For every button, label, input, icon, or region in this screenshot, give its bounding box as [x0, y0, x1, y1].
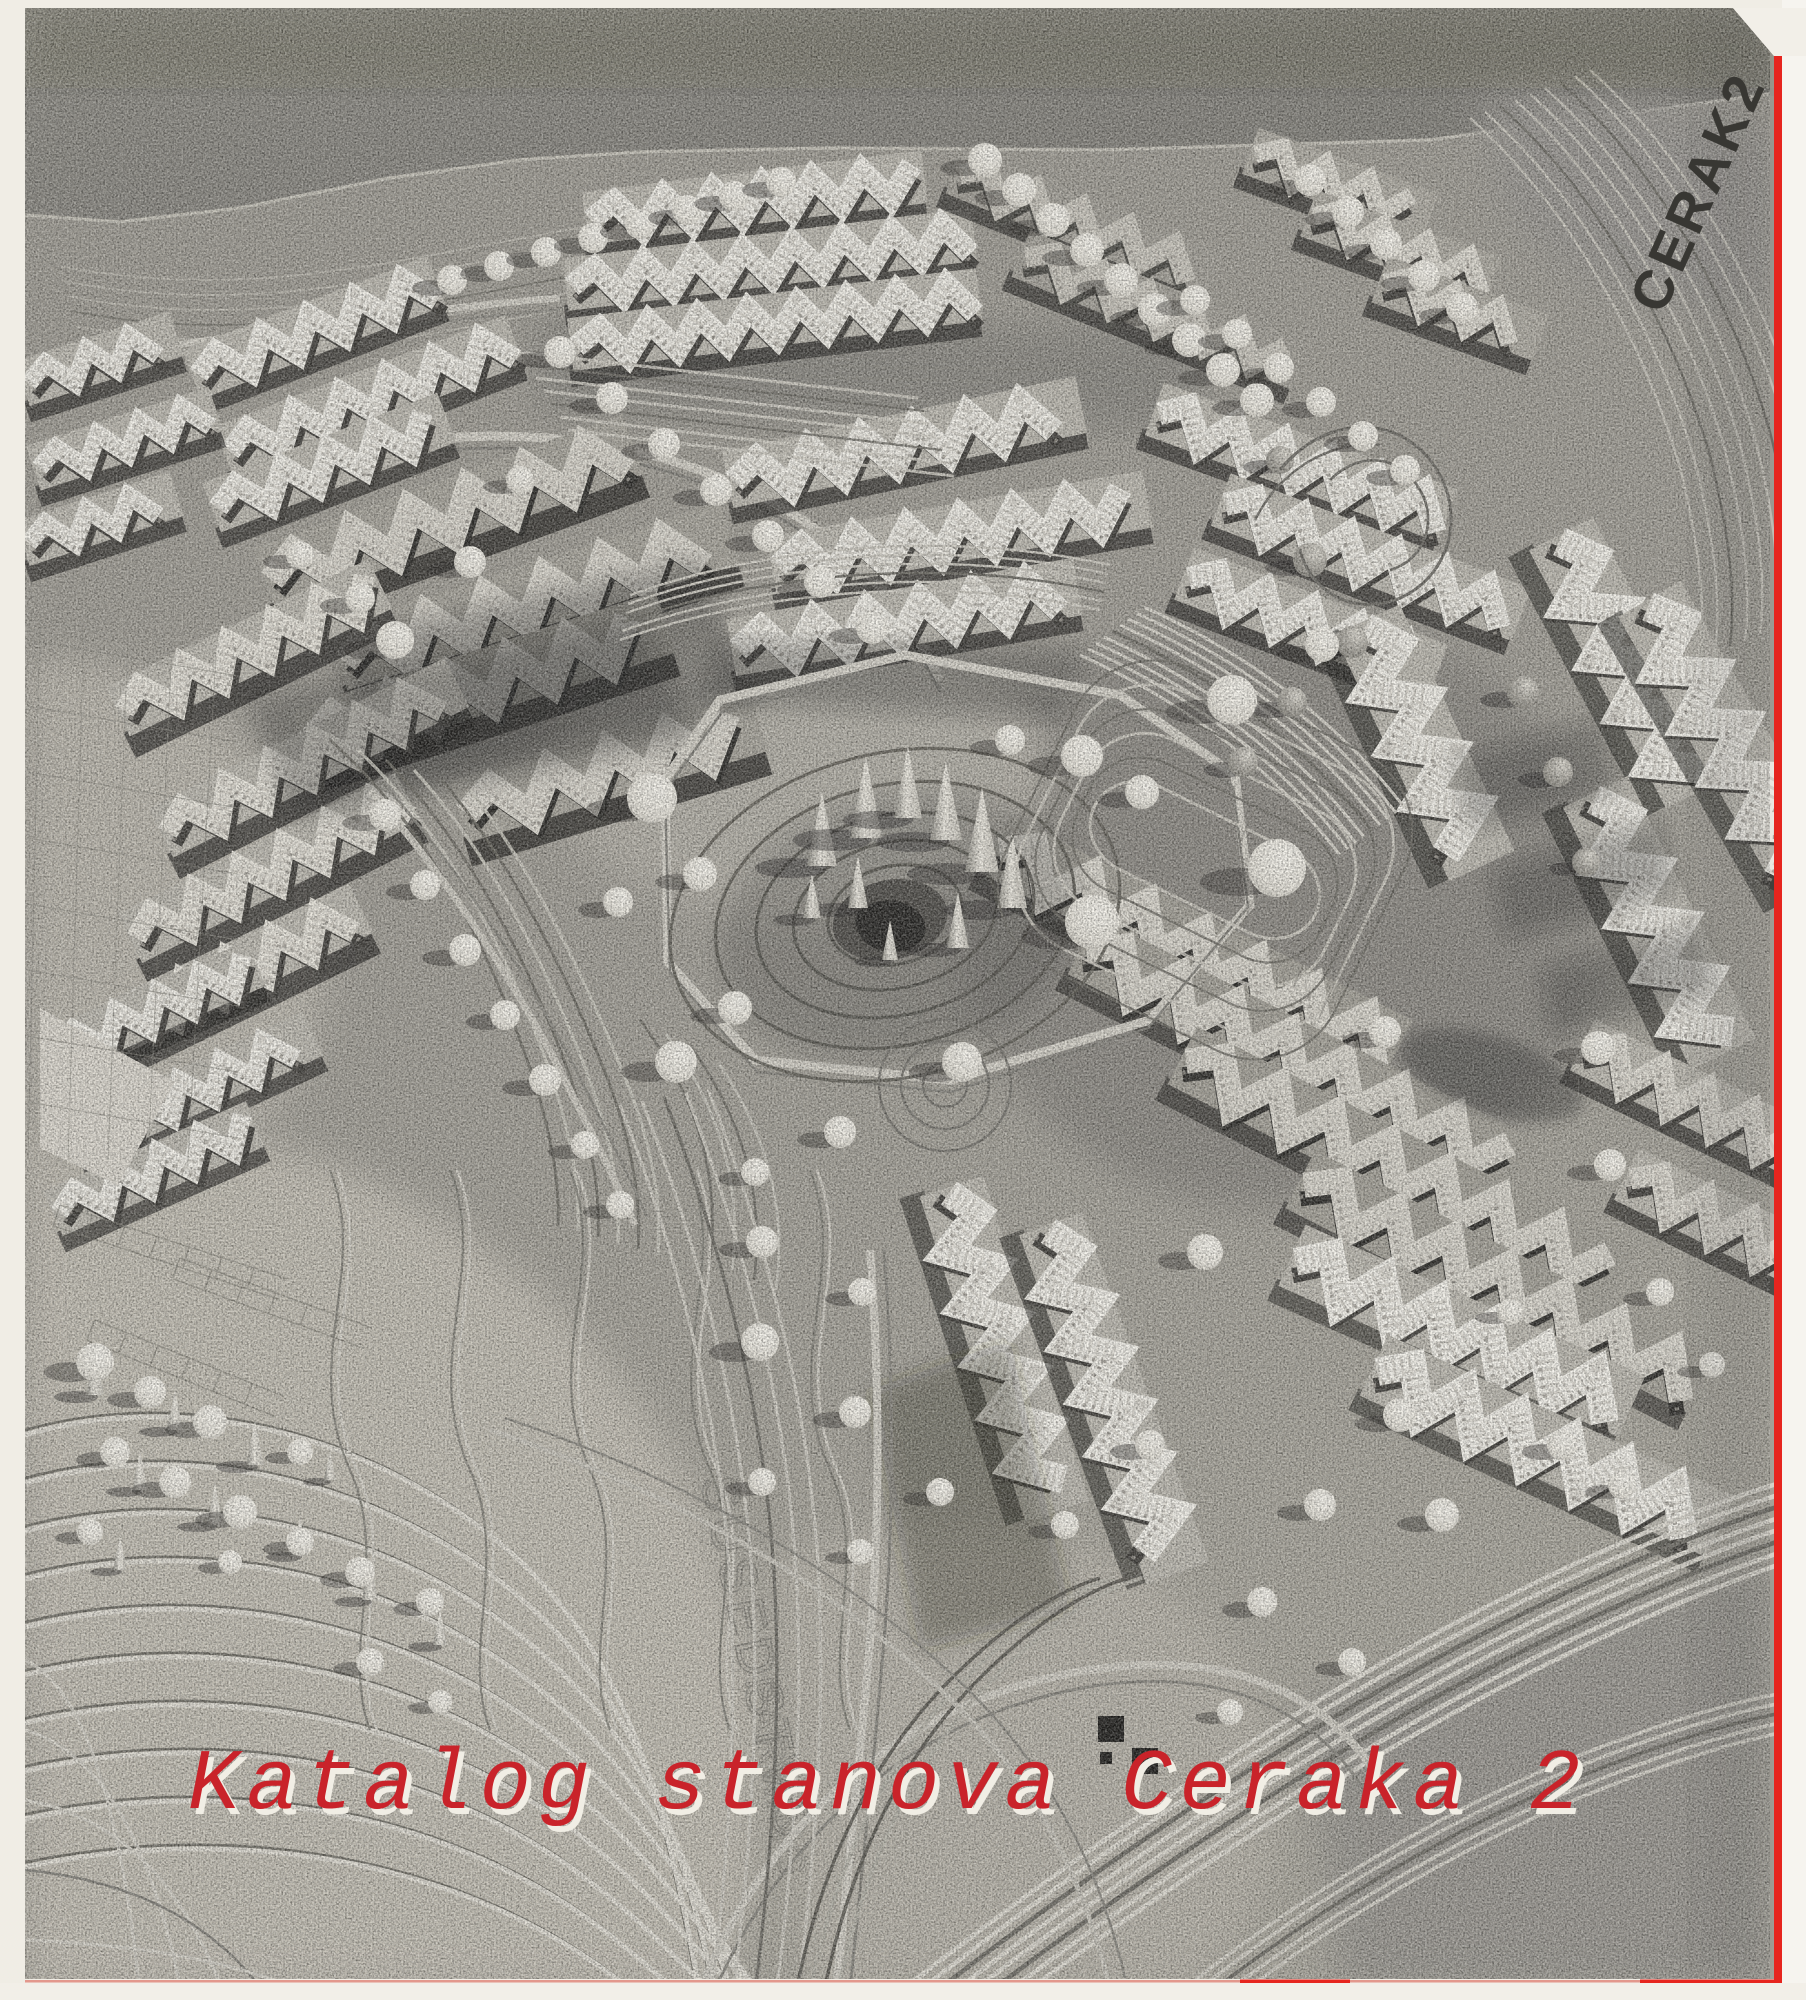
svg-text:Katalog stanova Ceraka 2: Katalog stanova Ceraka 2 [188, 1736, 1587, 1834]
